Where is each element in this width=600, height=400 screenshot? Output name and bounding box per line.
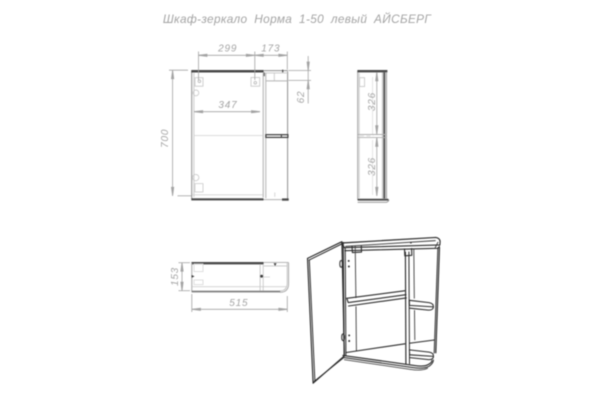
svg-text:62: 62 xyxy=(296,91,307,104)
svg-text:515: 515 xyxy=(229,298,248,309)
svg-text:Шкаф-зеркало Норма 1-50 левый: Шкаф-зеркало Норма 1-50 левый АЙСБЕРГ xyxy=(163,12,433,26)
svg-text:173: 173 xyxy=(261,44,280,55)
svg-text:153: 153 xyxy=(170,267,181,286)
svg-text:326: 326 xyxy=(367,92,378,111)
svg-text:326: 326 xyxy=(367,157,378,176)
svg-text:347: 347 xyxy=(218,100,237,111)
svg-text:700: 700 xyxy=(160,129,171,148)
svg-text:299: 299 xyxy=(217,44,237,55)
